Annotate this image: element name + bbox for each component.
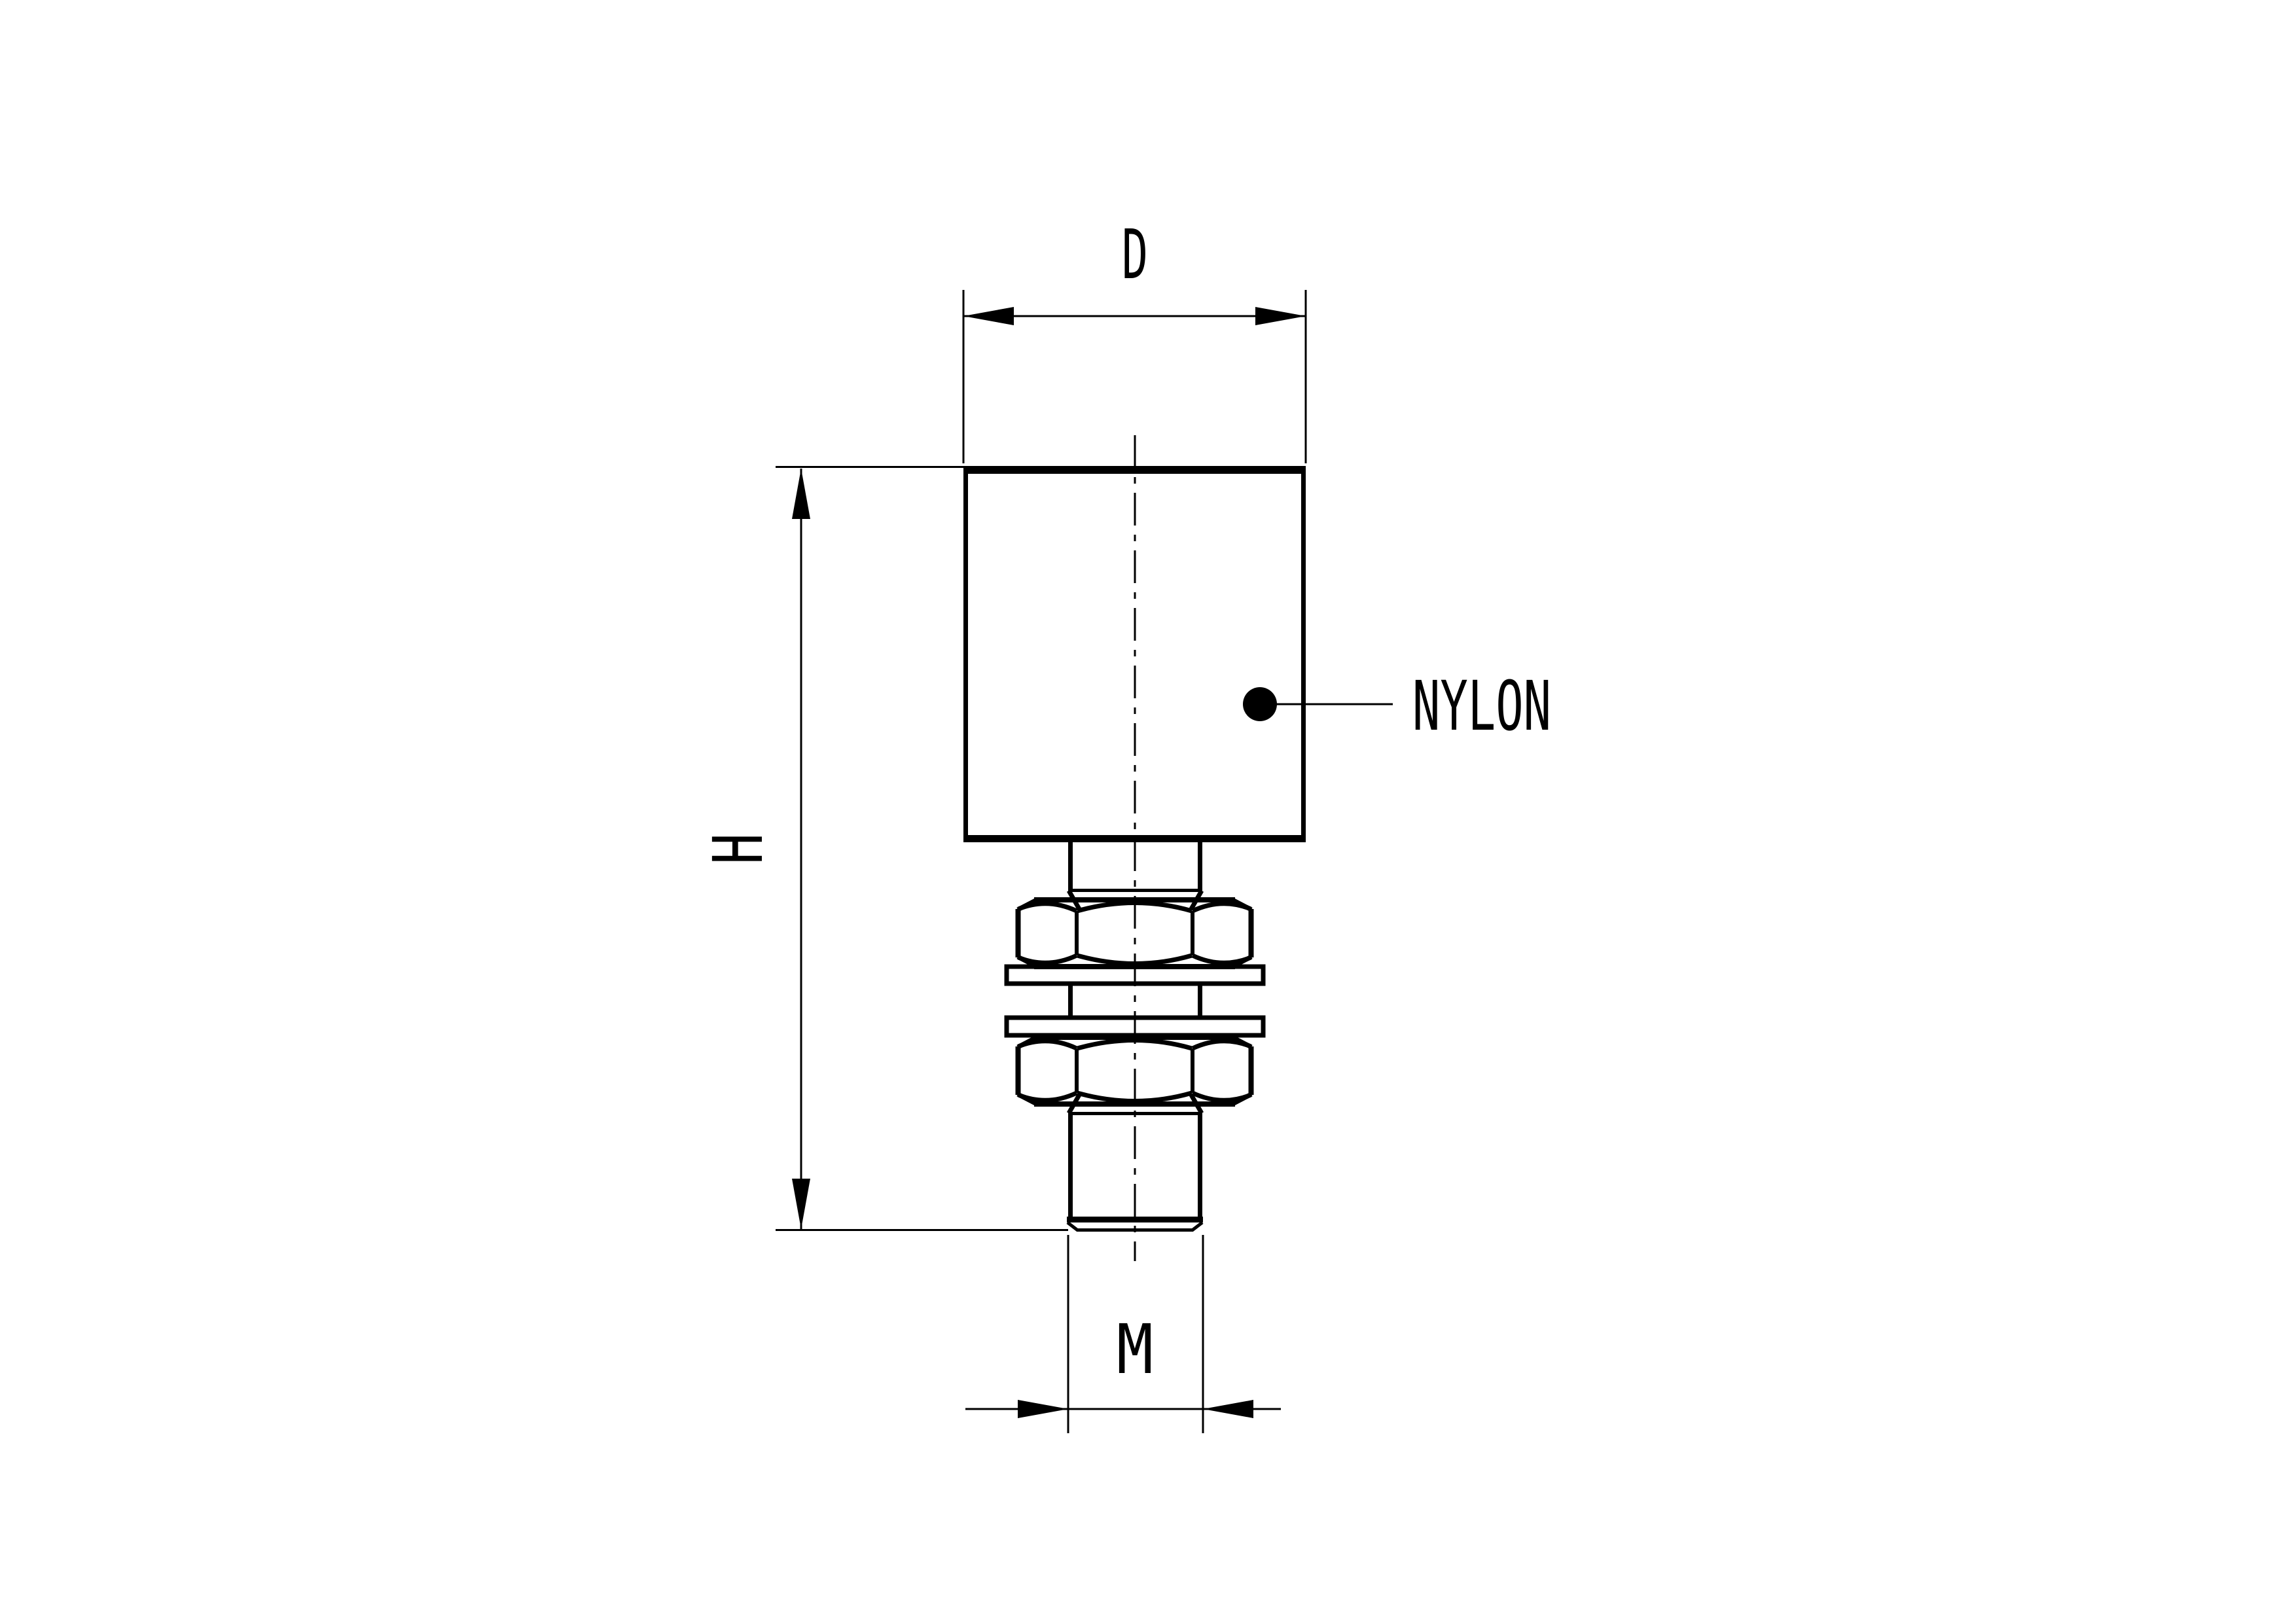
dimension-label-thread: M bbox=[1117, 1310, 1153, 1389]
arrowhead-down-icon bbox=[792, 1179, 810, 1229]
arrowhead-up-icon bbox=[792, 469, 810, 519]
material-label: NYLON bbox=[1412, 666, 1551, 746]
dimension-label-height: H bbox=[698, 833, 778, 865]
arrowhead-right-icon bbox=[1255, 307, 1306, 325]
arrowhead-left-icon bbox=[963, 307, 1014, 325]
cylinder-body bbox=[776, 467, 1306, 840]
arrowhead-left-icon bbox=[1203, 1400, 1253, 1418]
arrowhead-right-icon bbox=[1018, 1400, 1068, 1418]
dimension-height: H bbox=[698, 469, 1068, 1230]
technical-drawing: D H M NYLON bbox=[0, 0, 2296, 1623]
material-callout: NYLON bbox=[1243, 666, 1551, 746]
dimension-diameter: D bbox=[963, 215, 1306, 463]
dimension-label-diameter: D bbox=[1122, 215, 1148, 294]
dimension-thread: M bbox=[965, 1235, 1281, 1433]
part-view bbox=[776, 435, 1306, 1261]
